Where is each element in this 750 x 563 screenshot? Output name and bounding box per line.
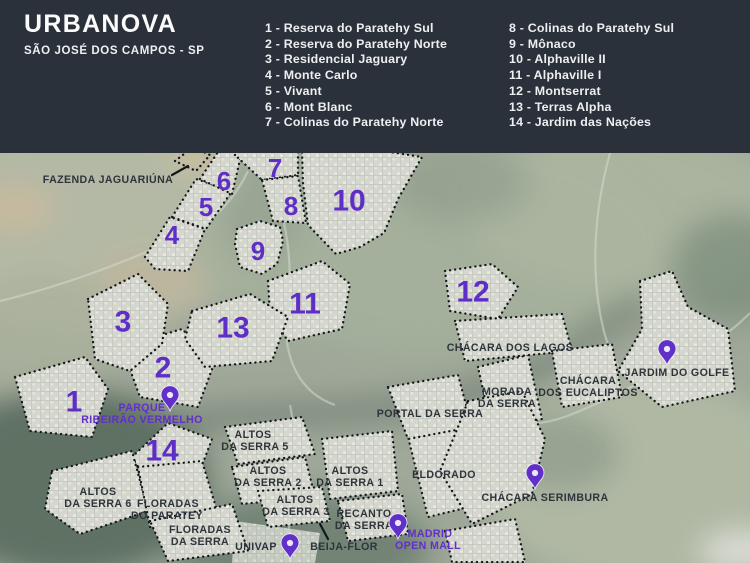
area-label-recanto-line1: RECANTO xyxy=(337,508,392,520)
region-number-2: 2 xyxy=(155,352,172,385)
legend-item-6: 6 - Mont Blanc xyxy=(265,100,447,116)
area-label-altos3-line1: ALTOS xyxy=(277,494,314,506)
area-label-altos2-line2: DA SERRA 2 xyxy=(234,477,301,489)
legend-item-4: 4 - Monte Carlo xyxy=(265,68,447,84)
urbanova-map-page: URBANOVA SÃO JOSÉ DOS CAMPOS - SP 1 - Re… xyxy=(0,0,750,563)
legend-item-14: 14 - Jardim das Nações xyxy=(509,115,674,131)
region-number-7: 7 xyxy=(268,153,282,183)
legend-column-2: 8 - Colinas do Paratehy Sul 9 - Mônaco 1… xyxy=(509,21,674,131)
area-label-chacara-dos-lagos: CHÁCARA DOS LAGOS xyxy=(447,341,573,354)
region-number-4: 4 xyxy=(165,220,180,250)
legend-column-1: 1 - Reserva do Paratehy Sul 2 - Reserva … xyxy=(265,21,447,131)
area-label-madrid-line1: MADRID xyxy=(408,528,453,540)
area-label-eucaliptos-line2: DOS EUCALIPTOS xyxy=(538,387,638,399)
region-number-6: 6 xyxy=(217,166,231,196)
area-label-recanto-line2: DA SERRA xyxy=(335,520,393,532)
area-label-chacara-serimbura: CHÁCARA SERIMBURA xyxy=(481,491,608,504)
area-label-altos2-line1: ALTOS xyxy=(250,465,287,477)
area-label-eldorado: ELDORADO xyxy=(412,469,476,481)
area-label-morada-line2: DA SERRA xyxy=(478,398,536,410)
region-number-10: 10 xyxy=(332,185,365,218)
legend-item-8: 8 - Colinas do Paratehy Sul xyxy=(509,21,674,37)
area-label-altos6-line1: ALTOS xyxy=(80,486,117,498)
legend-item-7: 7 - Colinas do Paratehy Norte xyxy=(265,115,447,131)
page-title: URBANOVA xyxy=(24,10,205,39)
legend-item-3: 3 - Residencial Jaguary xyxy=(265,52,447,68)
legend-item-10: 10 - Alphaville II xyxy=(509,52,674,68)
area-label-fazenda-jaguariuna: FAZENDA JAGUARIÚNA xyxy=(43,173,173,186)
region-number-13: 13 xyxy=(216,312,249,345)
area-label-parque-ribeirao-line1: PARQUE xyxy=(119,402,166,414)
area-label-univap: UNIVAP xyxy=(235,541,277,553)
legend-item-5: 5 - Vivant xyxy=(265,84,447,100)
area-label-madrid-line2: OPEN MALL xyxy=(395,540,461,552)
header: URBANOVA SÃO JOSÉ DOS CAMPOS - SP 1 - Re… xyxy=(0,0,750,153)
area-label-floradas-serra-line2: DA SERRA xyxy=(171,536,229,548)
region-number-14: 14 xyxy=(145,435,179,468)
area-label-altos5-line1: ALTOS xyxy=(235,429,272,441)
area-label-beija-flor: BEIJA-FLOR xyxy=(310,541,378,553)
brand-block: URBANOVA SÃO JOSÉ DOS CAMPOS - SP xyxy=(24,10,205,57)
legend-item-2: 2 - Reserva do Paratehy Norte xyxy=(265,37,447,53)
legend-item-11: 11 - Alphaville I xyxy=(509,68,674,84)
legend-item-1: 1 - Reserva do Paratehy Sul xyxy=(265,21,447,37)
legend-item-9: 9 - Mônaco xyxy=(509,37,674,53)
legend-item-13: 13 - Terras Alpha xyxy=(509,100,674,116)
region-number-5: 5 xyxy=(199,192,213,222)
region-number-1: 1 xyxy=(66,386,83,419)
area-label-jardim-do-golfe: JARDIM DO GOLFE xyxy=(625,367,730,379)
area-label-altos5-line2: DA SERRA 5 xyxy=(221,441,288,453)
area-label-floradas-serra-line1: FLORADAS xyxy=(169,524,231,536)
region-number-12: 12 xyxy=(456,276,489,309)
region-number-11: 11 xyxy=(289,288,321,321)
satellite-map: 1 2 3 4 5 6 7 8 9 10 11 12 13 14 FAZENDA… xyxy=(0,153,750,563)
page-subtitle: SÃO JOSÉ DOS CAMPOS - SP xyxy=(24,45,205,57)
region-number-9: 9 xyxy=(251,236,265,266)
area-label-altos3-line2: DA SERRA 3 xyxy=(262,506,329,518)
area-label-portal-da-serra: PORTAL DA SERRA xyxy=(377,408,483,420)
area-label-altos6-line2: DA SERRA 6 xyxy=(64,498,131,510)
region-number-3: 3 xyxy=(115,306,132,339)
legend-item-12: 12 - Montserrat xyxy=(509,84,674,100)
area-label-altos1-line1: ALTOS xyxy=(332,465,369,477)
area-label-floradas-paratey-line2: DO PARATEY xyxy=(131,510,203,522)
area-label-parque-ribeirao-line2: RIBEIRÃO VERMELHO xyxy=(81,413,203,426)
area-label-floradas-paratey-line1: FLORADAS xyxy=(137,498,199,510)
region-number-8: 8 xyxy=(284,191,298,221)
area-label-altos1-line2: DA SERRA 1 xyxy=(316,477,383,489)
area-label-morada-line1: MORADA xyxy=(482,386,532,398)
area-label-eucaliptos-line1: CHÁCARA xyxy=(560,374,616,387)
